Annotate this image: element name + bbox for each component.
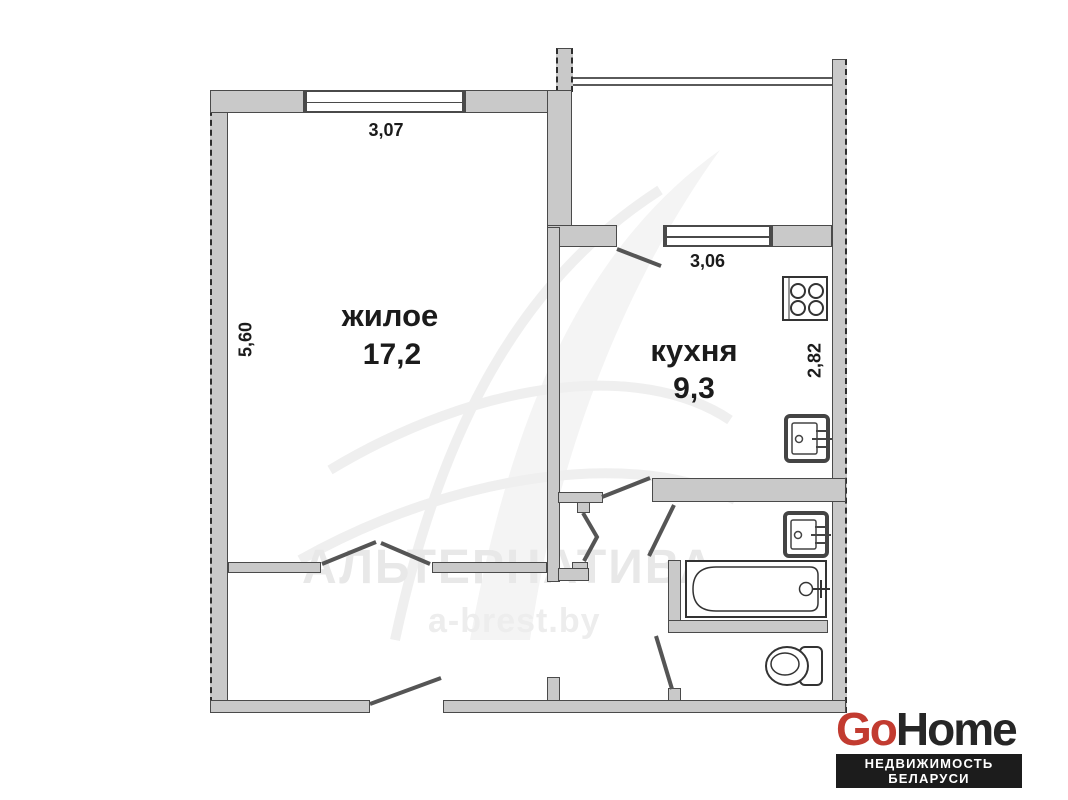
- wall-bathroom-left: [668, 560, 681, 622]
- balcony-railing: [572, 77, 832, 86]
- wall-balcony-stub: [556, 48, 573, 92]
- logo-tagline: НЕДВИЖИМОСТЬ БЕЛАРУСИ: [836, 754, 1022, 788]
- stove-icon: [783, 277, 827, 320]
- logo-go-text: Go: [836, 703, 896, 755]
- wall-living-balcony-divider: [547, 90, 572, 227]
- kitchen-sink-icon: [786, 416, 832, 461]
- window-living-room: [303, 90, 466, 113]
- living-room-area: 17,2: [292, 338, 492, 372]
- entrance-door-leaf: [370, 678, 441, 704]
- toilet-door-leaf: [656, 636, 672, 689]
- wall-bottom-right: [443, 700, 846, 713]
- kitchen-area: 9,3: [594, 372, 794, 406]
- wall-top-right-segment: [465, 90, 557, 113]
- dimension-living-depth: 5,60: [236, 310, 257, 370]
- wall-bathroom-toilet-divider: [668, 620, 828, 633]
- watermark-swoosh: [0, 0, 1068, 800]
- dimension-living-width: 3,07: [326, 120, 446, 141]
- dimension-kitchen-window: 3,06: [650, 251, 765, 272]
- kitchen-door-leaf: [602, 478, 650, 497]
- wall-living-bottom-left: [228, 562, 321, 573]
- wall-living-bottom-right: [432, 562, 547, 573]
- wall-outer-left: [210, 90, 228, 713]
- wall-outer-right: [832, 59, 847, 713]
- window-kitchen: [663, 225, 773, 247]
- living-room-label: жилое: [290, 298, 490, 334]
- logo-home-text: Home: [896, 703, 1016, 755]
- toilet-icon: [766, 647, 822, 685]
- bathroom-sink-icon: [785, 513, 831, 556]
- kitchen-label: кухня: [594, 333, 794, 369]
- wall-kitchen-bottom: [652, 478, 846, 502]
- watermark-site: a-brest.by: [428, 602, 601, 641]
- dimension-kitchen-depth: 2,82: [805, 331, 826, 391]
- gohome-logo: GoHome НЕДВИЖИМОСТЬ БЕЛАРУСИ: [836, 706, 1022, 788]
- wall-closet-bottom: [558, 568, 589, 581]
- wall-bottom-left: [210, 700, 370, 713]
- wall-top-left-segment: [210, 90, 305, 113]
- wall-closet-jamb-top: [577, 502, 590, 513]
- wall-living-kitchen-divider: [547, 227, 560, 582]
- floor-plan-canvas: жилое 17,2 кухня 9,3 3,07 3,06 5,60 2,82…: [0, 0, 1068, 800]
- wall-kitchen-window-right: [771, 225, 832, 247]
- gohome-logo-text: GoHome: [836, 706, 1022, 752]
